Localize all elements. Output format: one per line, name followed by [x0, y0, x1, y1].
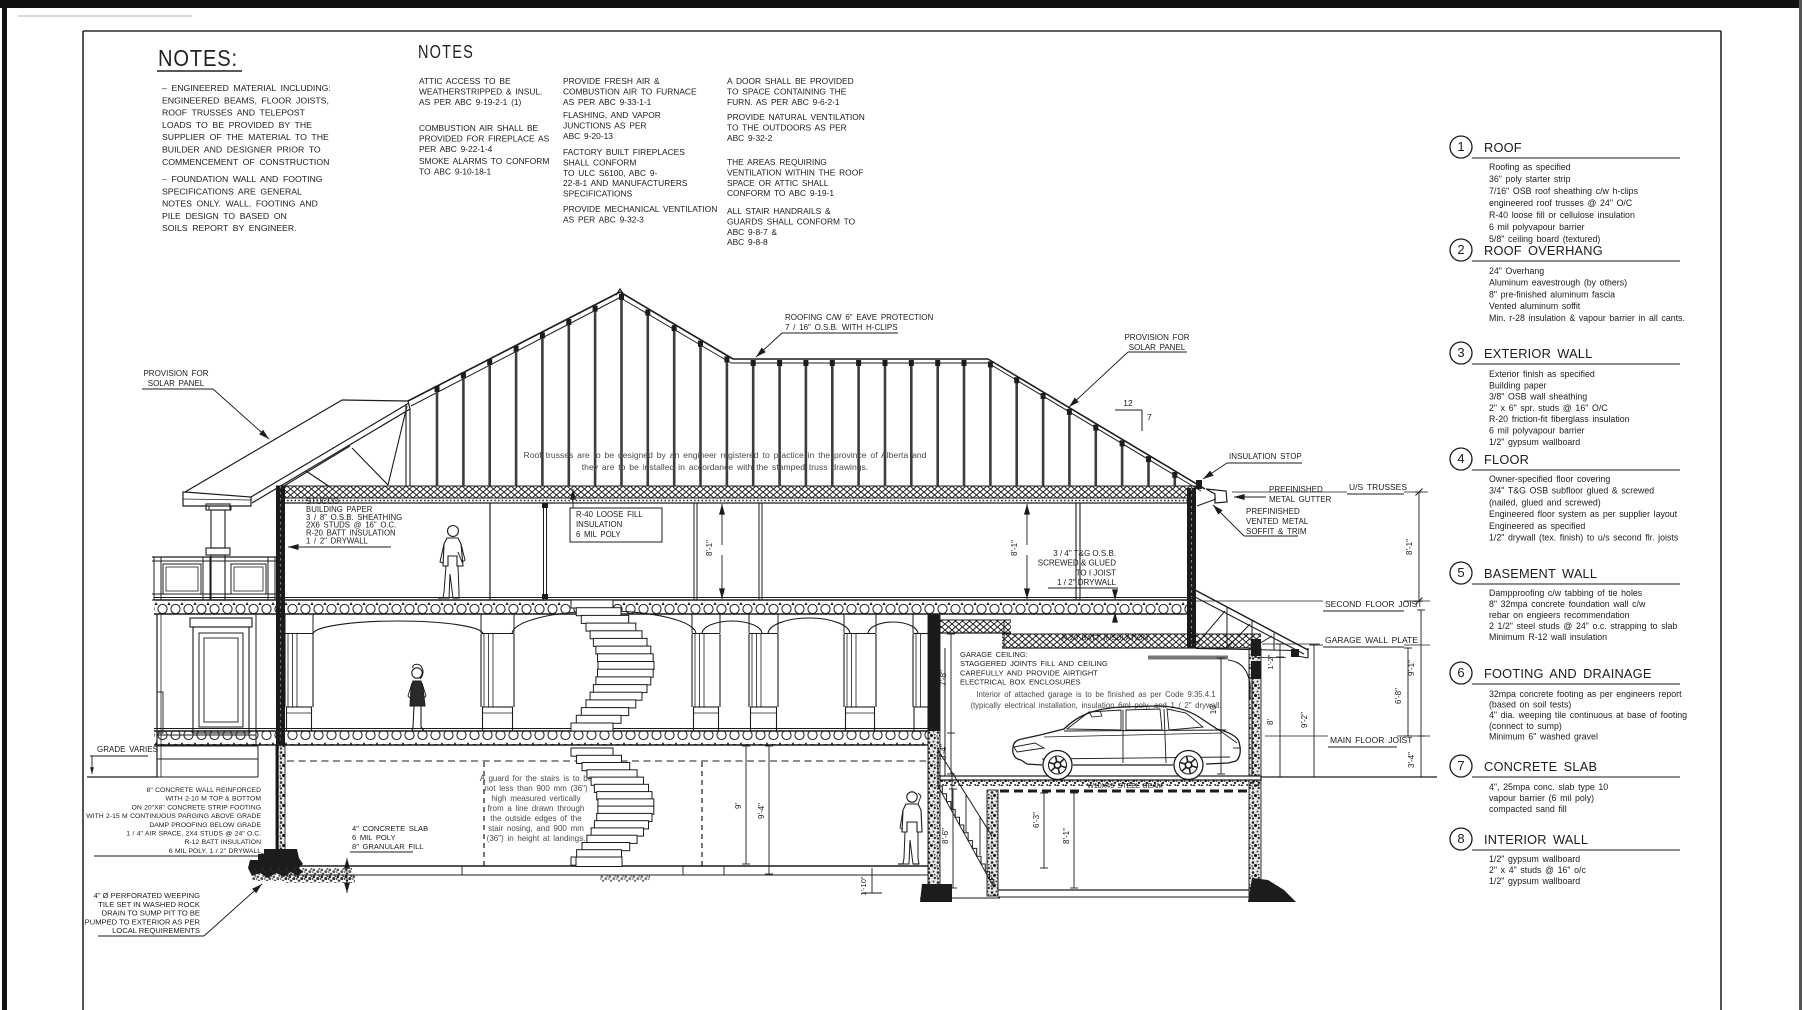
svg-text:8'-1": 8'-1"	[1010, 540, 1019, 556]
svg-text:1/2" gypsum wallboard2" x 4" s: 1/2" gypsum wallboard2" x 4" studs @ 16"…	[1489, 854, 1586, 886]
svg-text:1'-2": 1'-2"	[1266, 654, 1275, 669]
svg-text:FOOTING AND DRAINAGE: FOOTING AND DRAINAGE	[1484, 666, 1652, 681]
svg-text:9': 9'	[734, 803, 743, 809]
svg-text:12: 12	[1123, 398, 1133, 408]
svg-text:ROOF OVERHANG: ROOF OVERHANG	[1484, 243, 1603, 258]
svg-text:– ENGINEERED MATERIAL INCLUDIN: – ENGINEERED MATERIAL INCLUDING:ENGINEER…	[162, 83, 331, 167]
svg-text:INTERIOR WALL: INTERIOR WALL	[1484, 832, 1588, 847]
svg-text:9'-2": 9'-2"	[1300, 712, 1309, 728]
svg-text:8'-1": 8'-1"	[1405, 539, 1414, 555]
svg-text:6'-3": 6'-3"	[1032, 812, 1041, 828]
svg-text:PROVISION FORSOLAR PANEL: PROVISION FORSOLAR PANEL	[143, 369, 208, 388]
svg-text:R-20 BATT INSULATION: R-20 BATT INSULATION	[1062, 633, 1148, 642]
svg-text:4: 4	[1457, 451, 1464, 466]
svg-text:3'-4": 3'-4"	[1407, 752, 1416, 768]
svg-text:3: 3	[1457, 345, 1464, 360]
svg-text:EXTERIOR WALL: EXTERIOR WALL	[1484, 346, 1592, 361]
svg-text:8'-1": 8'-1"	[1062, 828, 1071, 844]
svg-text:9'-4": 9'-4"	[757, 803, 766, 819]
svg-text:8': 8'	[1266, 719, 1275, 725]
svg-text:PREFINISHEDMETAL GUTTER: PREFINISHEDMETAL GUTTER	[1269, 485, 1332, 504]
svg-text:GARAGE WALL PLATE: GARAGE WALL PLATE	[1325, 635, 1418, 645]
svg-text:7: 7	[1147, 412, 1152, 422]
svg-text:8'-1": 8'-1"	[705, 540, 714, 556]
svg-text:8'-6": 8'-6"	[941, 828, 950, 844]
svg-text:FLOOR: FLOOR	[1484, 452, 1529, 467]
svg-text:INSULATION STOP: INSULATION STOP	[1229, 452, 1302, 461]
svg-text:1: 1	[1457, 139, 1464, 154]
svg-text:7: 7	[1457, 758, 1464, 773]
svg-text:GRADE VARIES: GRADE VARIES	[97, 745, 158, 754]
svg-text:NOTES:: NOTES:	[158, 45, 238, 71]
svg-text:10': 10'	[1209, 703, 1218, 714]
svg-text:PROVISION FORSOLAR PANEL: PROVISION FORSOLAR PANEL	[1124, 333, 1189, 352]
svg-text:6'-8": 6'-8"	[1394, 688, 1403, 704]
svg-text:SECOND FLOOR JOIST: SECOND FLOOR JOIST	[1325, 599, 1422, 609]
svg-text:U/S TRUSSES: U/S TRUSSES	[1349, 482, 1407, 492]
svg-text:NOTES: NOTES	[418, 42, 474, 62]
svg-text:3'-4": 3'-4"	[939, 744, 948, 760]
svg-text:CONCRETE SLAB: CONCRETE SLAB	[1484, 759, 1597, 774]
svg-text:5: 5	[1457, 565, 1464, 580]
svg-text:8: 8	[1457, 831, 1464, 846]
svg-text:W10X45 STEEL BEAM: W10X45 STEEL BEAM	[1087, 783, 1163, 790]
svg-text:MAIN FLOOR JOIST: MAIN FLOOR JOIST	[1330, 735, 1412, 745]
svg-text:A guard for the stairs is to b: A guard for the stairs is to benot less …	[480, 774, 593, 843]
svg-text:6: 6	[1457, 665, 1464, 680]
svg-text:2: 2	[1457, 242, 1464, 257]
svg-text:A DOOR SHALL BE PROVIDEDTO SPA: A DOOR SHALL BE PROVIDEDTO SPACE CONTAIN…	[727, 76, 854, 107]
svg-text:PREFINISHEDVENTED METALSOFFIT: PREFINISHEDVENTED METALSOFFIT & TRIM	[1246, 507, 1309, 536]
svg-text:ROOF: ROOF	[1484, 140, 1522, 155]
svg-text:7'-8": 7'-8"	[939, 670, 948, 686]
svg-text:BASEMENT WALL: BASEMENT WALL	[1484, 566, 1597, 581]
